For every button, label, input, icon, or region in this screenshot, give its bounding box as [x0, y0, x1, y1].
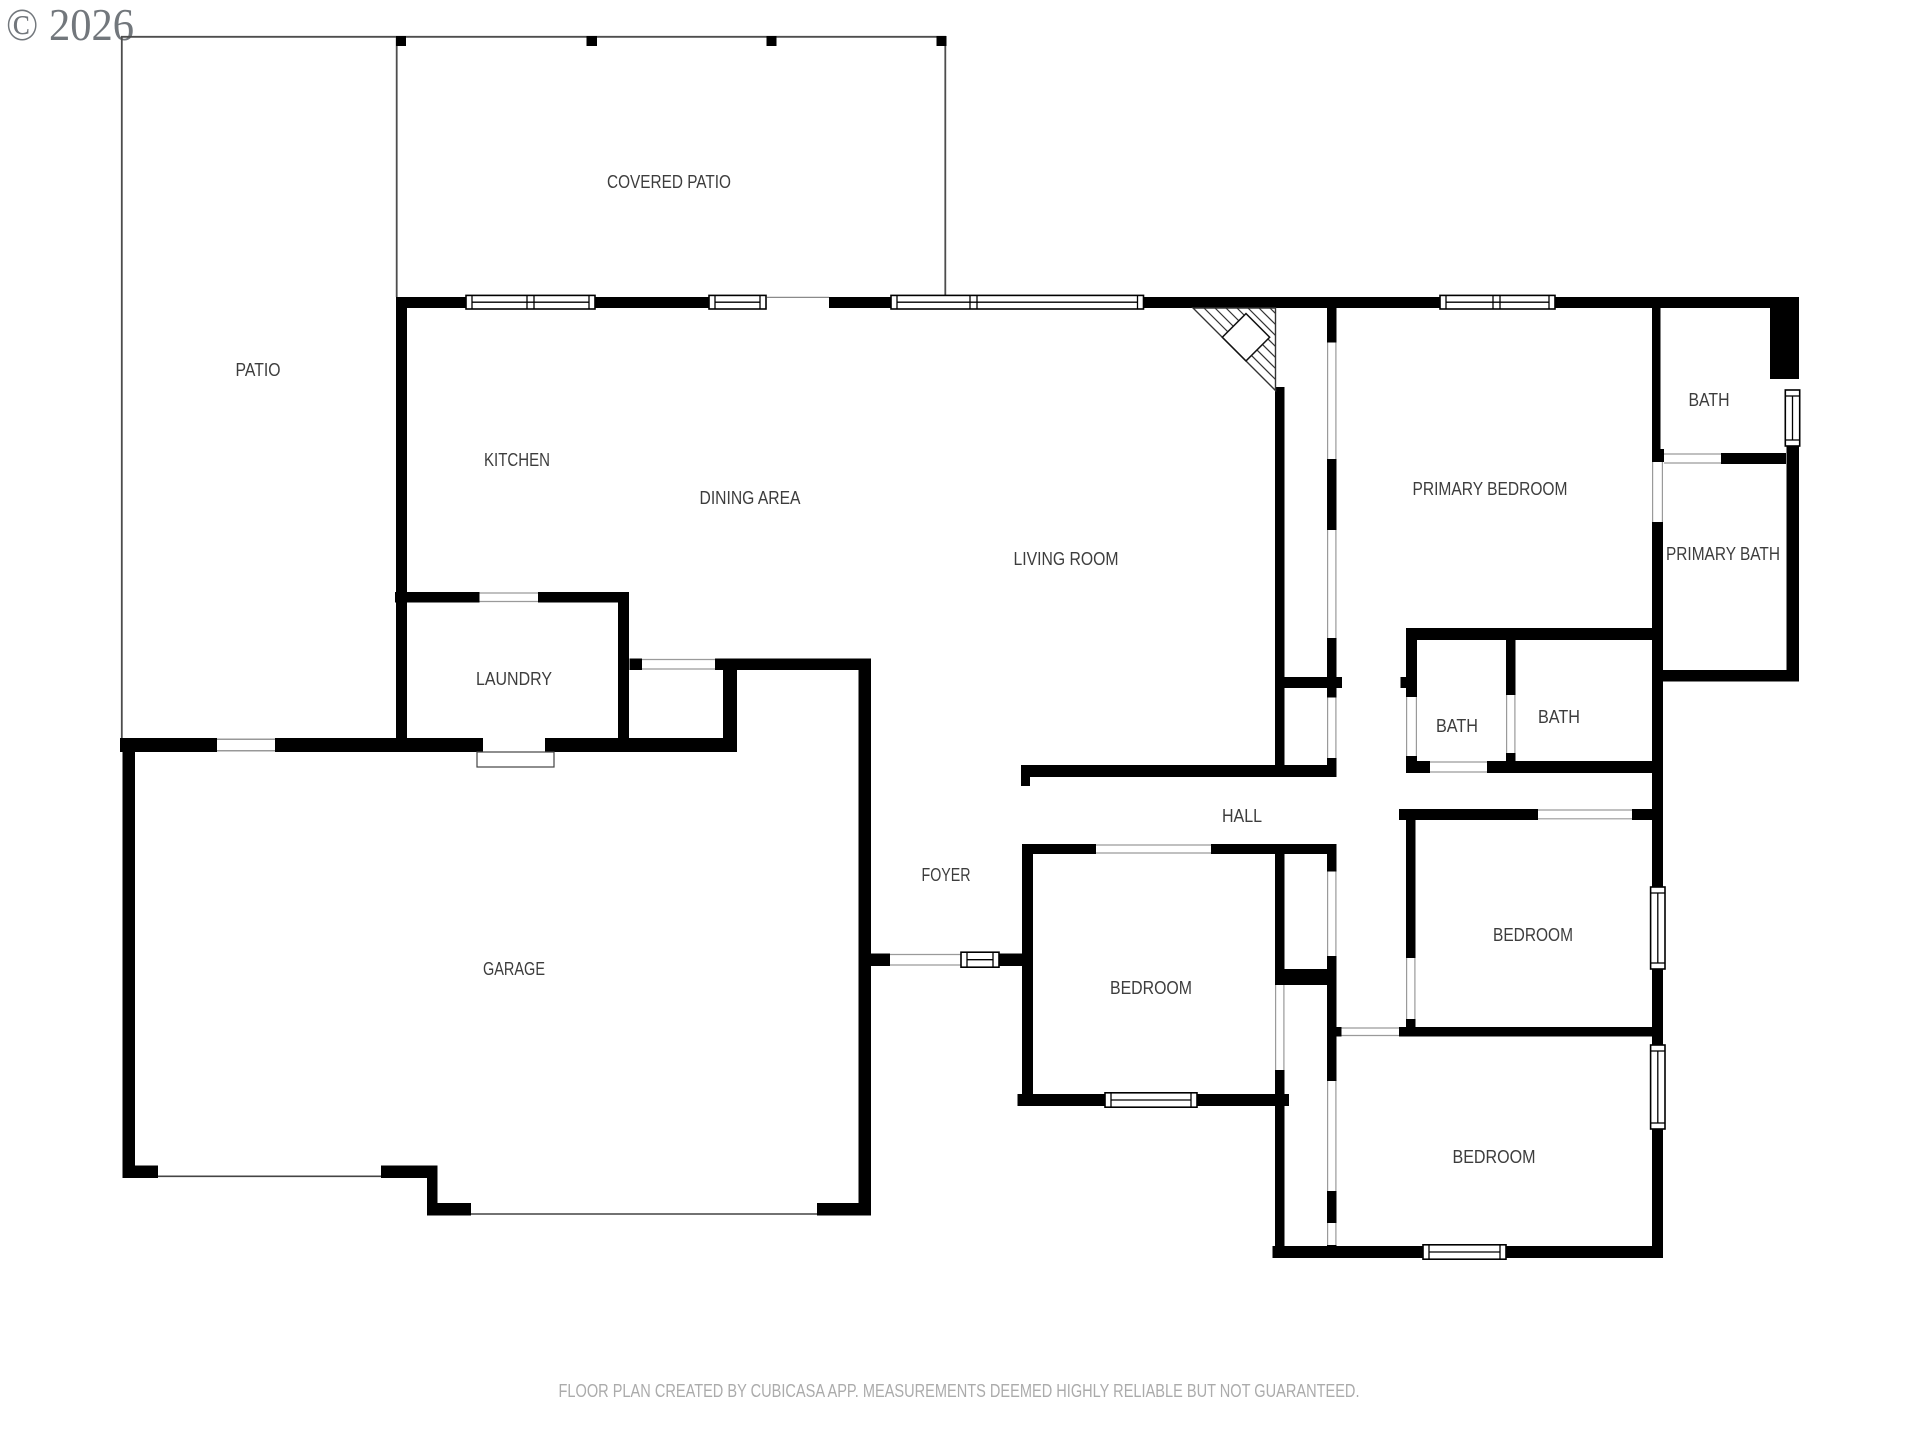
svg-text:KITCHEN: KITCHEN: [484, 450, 550, 470]
svg-text:BATH: BATH: [1436, 716, 1478, 736]
svg-text:FLOOR PLAN CREATED BY CUBICASA: FLOOR PLAN CREATED BY CUBICASA APP. MEAS…: [559, 1380, 1360, 1401]
svg-text:PATIO: PATIO: [236, 360, 281, 380]
svg-text:BATH: BATH: [1689, 390, 1730, 410]
svg-text:HALL: HALL: [1222, 806, 1262, 826]
svg-text:LIVING ROOM: LIVING ROOM: [1014, 549, 1119, 569]
svg-text:BEDROOM: BEDROOM: [1493, 925, 1573, 945]
svg-text:© 2026: © 2026: [6, 0, 134, 50]
svg-text:BATH: BATH: [1538, 707, 1580, 727]
svg-text:PRIMARY BEDROOM: PRIMARY BEDROOM: [1413, 479, 1568, 499]
svg-text:LAUNDRY: LAUNDRY: [476, 669, 552, 689]
svg-text:GARAGE: GARAGE: [483, 959, 545, 979]
svg-text:FOYER: FOYER: [922, 865, 971, 885]
svg-text:DINING AREA: DINING AREA: [700, 488, 802, 508]
svg-text:PRIMARY BATH: PRIMARY BATH: [1666, 544, 1780, 564]
svg-text:BEDROOM: BEDROOM: [1453, 1147, 1536, 1167]
svg-text:COVERED PATIO: COVERED PATIO: [607, 172, 731, 192]
svg-text:BEDROOM: BEDROOM: [1110, 978, 1192, 998]
